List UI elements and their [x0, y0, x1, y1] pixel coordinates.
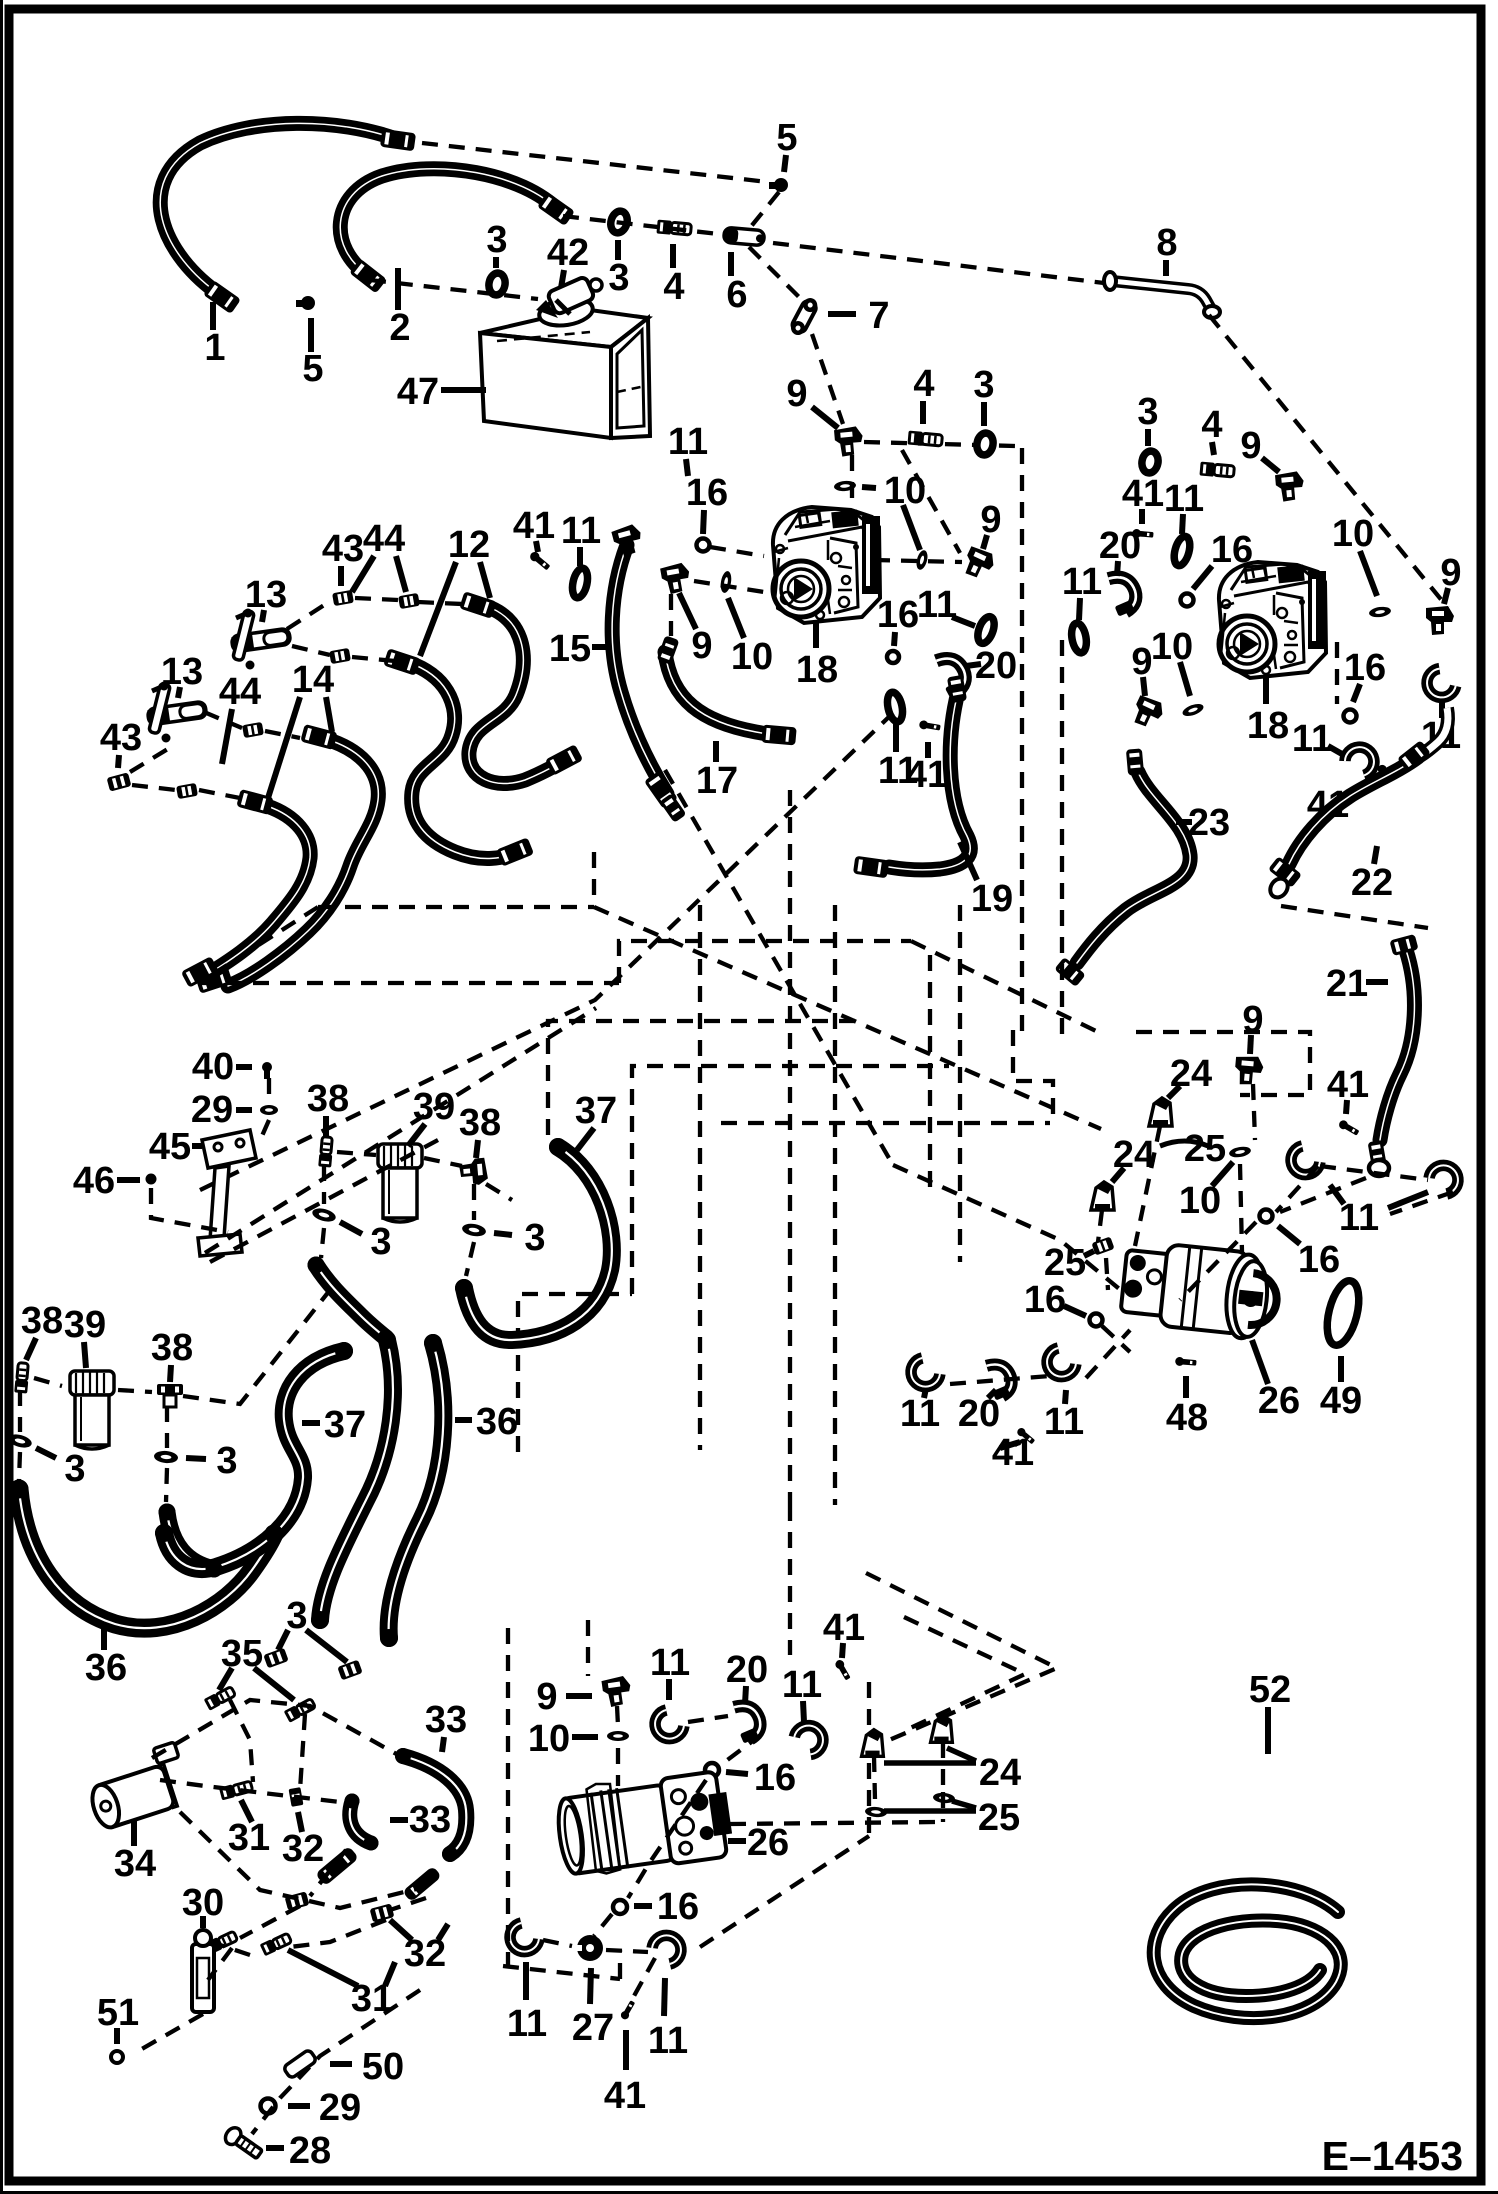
- svg-text:13: 13: [161, 651, 203, 693]
- svg-text:3: 3: [973, 364, 994, 406]
- svg-text:10: 10: [528, 1718, 570, 1760]
- svg-text:25: 25: [1044, 1242, 1086, 1284]
- svg-text:40: 40: [192, 1046, 234, 1088]
- svg-text:18: 18: [796, 649, 838, 691]
- svg-text:23: 23: [1188, 802, 1230, 844]
- svg-text:16: 16: [877, 594, 919, 636]
- svg-text:5: 5: [302, 348, 323, 390]
- svg-text:20: 20: [958, 1393, 1000, 1435]
- svg-text:3: 3: [608, 257, 629, 299]
- svg-text:4: 4: [1201, 404, 1222, 446]
- svg-text:2: 2: [389, 307, 410, 349]
- svg-text:27: 27: [572, 2007, 614, 2049]
- svg-text:36: 36: [476, 1401, 518, 1443]
- svg-text:14: 14: [292, 659, 334, 701]
- svg-text:19: 19: [971, 878, 1013, 920]
- svg-text:41: 41: [513, 505, 555, 547]
- svg-text:5: 5: [776, 117, 797, 159]
- svg-text:16: 16: [754, 1757, 796, 1799]
- svg-text:11: 11: [1292, 718, 1332, 760]
- svg-text:16: 16: [1298, 1239, 1340, 1281]
- svg-text:52: 52: [1249, 1669, 1291, 1711]
- svg-text:11: 11: [1062, 561, 1102, 603]
- svg-text:1: 1: [204, 327, 225, 369]
- svg-text:24: 24: [979, 1752, 1021, 1794]
- svg-text:44: 44: [219, 671, 261, 713]
- svg-text:8: 8: [1156, 222, 1177, 264]
- svg-text:9: 9: [536, 1676, 557, 1718]
- svg-text:47: 47: [397, 371, 439, 413]
- svg-text:37: 37: [324, 1404, 366, 1446]
- svg-text:6: 6: [726, 274, 747, 316]
- svg-text:9: 9: [1242, 999, 1263, 1041]
- svg-text:11: 11: [1164, 478, 1204, 520]
- svg-text:29: 29: [319, 2087, 361, 2129]
- svg-text:38: 38: [307, 1078, 349, 1120]
- svg-text:16: 16: [1024, 1279, 1066, 1321]
- svg-text:25: 25: [1184, 1128, 1226, 1170]
- svg-text:21: 21: [1326, 963, 1368, 1005]
- svg-text:38: 38: [151, 1327, 193, 1369]
- svg-text:37: 37: [575, 1090, 617, 1132]
- svg-text:41: 41: [1327, 1064, 1369, 1106]
- svg-text:3: 3: [286, 1595, 307, 1637]
- svg-text:22: 22: [1351, 862, 1393, 904]
- svg-text:16: 16: [686, 472, 728, 514]
- svg-text:10: 10: [1332, 513, 1374, 555]
- svg-text:3: 3: [64, 1448, 85, 1490]
- svg-text:13: 13: [245, 574, 287, 616]
- svg-text:11: 11: [561, 510, 601, 552]
- svg-text:31: 31: [228, 1817, 270, 1859]
- svg-text:11: 11: [668, 421, 708, 463]
- svg-text:9: 9: [691, 625, 712, 667]
- svg-text:4: 4: [663, 266, 684, 308]
- svg-text:38: 38: [21, 1300, 63, 1342]
- svg-text:20: 20: [726, 1649, 768, 1691]
- svg-text:39: 39: [64, 1304, 106, 1346]
- svg-text:49: 49: [1320, 1380, 1362, 1422]
- svg-text:16: 16: [657, 1886, 699, 1928]
- svg-text:44: 44: [363, 518, 405, 560]
- svg-text:4: 4: [913, 363, 934, 405]
- svg-text:17: 17: [696, 760, 738, 802]
- svg-text:18: 18: [1247, 705, 1289, 747]
- svg-text:9: 9: [980, 499, 1001, 541]
- svg-text:3: 3: [486, 219, 507, 261]
- svg-text:9: 9: [1440, 552, 1461, 594]
- svg-text:43: 43: [100, 717, 142, 759]
- svg-text:28: 28: [289, 2130, 331, 2172]
- svg-text:16: 16: [1211, 529, 1253, 571]
- svg-text:36: 36: [85, 1647, 127, 1689]
- svg-text:9: 9: [1131, 641, 1152, 683]
- svg-text:38: 38: [459, 1102, 501, 1144]
- svg-text:42: 42: [547, 232, 589, 274]
- svg-text:45: 45: [149, 1126, 191, 1168]
- svg-text:3: 3: [216, 1440, 237, 1482]
- svg-text:10: 10: [731, 636, 773, 678]
- svg-text:15: 15: [549, 628, 591, 670]
- svg-text:11: 11: [900, 1393, 940, 1435]
- svg-text:20: 20: [1099, 525, 1141, 567]
- svg-text:41: 41: [604, 2075, 646, 2117]
- svg-text:46: 46: [73, 1160, 115, 1202]
- svg-text:E–1453: E–1453: [1322, 2133, 1463, 2179]
- svg-text:29: 29: [191, 1089, 233, 1131]
- svg-text:51: 51: [97, 1992, 139, 2034]
- svg-text:9: 9: [1240, 425, 1261, 467]
- svg-text:32: 32: [282, 1828, 324, 1870]
- svg-text:9: 9: [786, 373, 807, 415]
- svg-text:41: 41: [906, 754, 948, 796]
- svg-text:26: 26: [1258, 1380, 1300, 1422]
- svg-text:33: 33: [425, 1699, 467, 1741]
- svg-text:25: 25: [978, 1797, 1020, 1839]
- svg-text:3: 3: [524, 1217, 545, 1259]
- svg-text:12: 12: [448, 524, 490, 566]
- svg-text:41: 41: [823, 1607, 865, 1649]
- svg-text:3: 3: [1137, 391, 1158, 433]
- svg-text:34: 34: [114, 1843, 156, 1885]
- svg-text:11: 11: [782, 1664, 822, 1706]
- svg-text:7: 7: [868, 295, 889, 337]
- svg-text:11: 11: [648, 2020, 688, 2062]
- svg-text:43: 43: [322, 528, 364, 570]
- svg-text:33: 33: [409, 1799, 451, 1841]
- svg-text:10: 10: [1151, 626, 1193, 668]
- svg-text:3: 3: [370, 1221, 391, 1263]
- svg-text:50: 50: [362, 2046, 404, 2088]
- svg-text:11: 11: [650, 1642, 690, 1684]
- svg-text:48: 48: [1166, 1397, 1208, 1439]
- svg-text:11: 11: [1044, 1401, 1084, 1443]
- svg-text:41: 41: [992, 1432, 1034, 1474]
- svg-text:11: 11: [507, 2003, 547, 2045]
- svg-text:16: 16: [1344, 647, 1386, 689]
- svg-text:41: 41: [1122, 473, 1164, 515]
- svg-text:26: 26: [747, 1822, 789, 1864]
